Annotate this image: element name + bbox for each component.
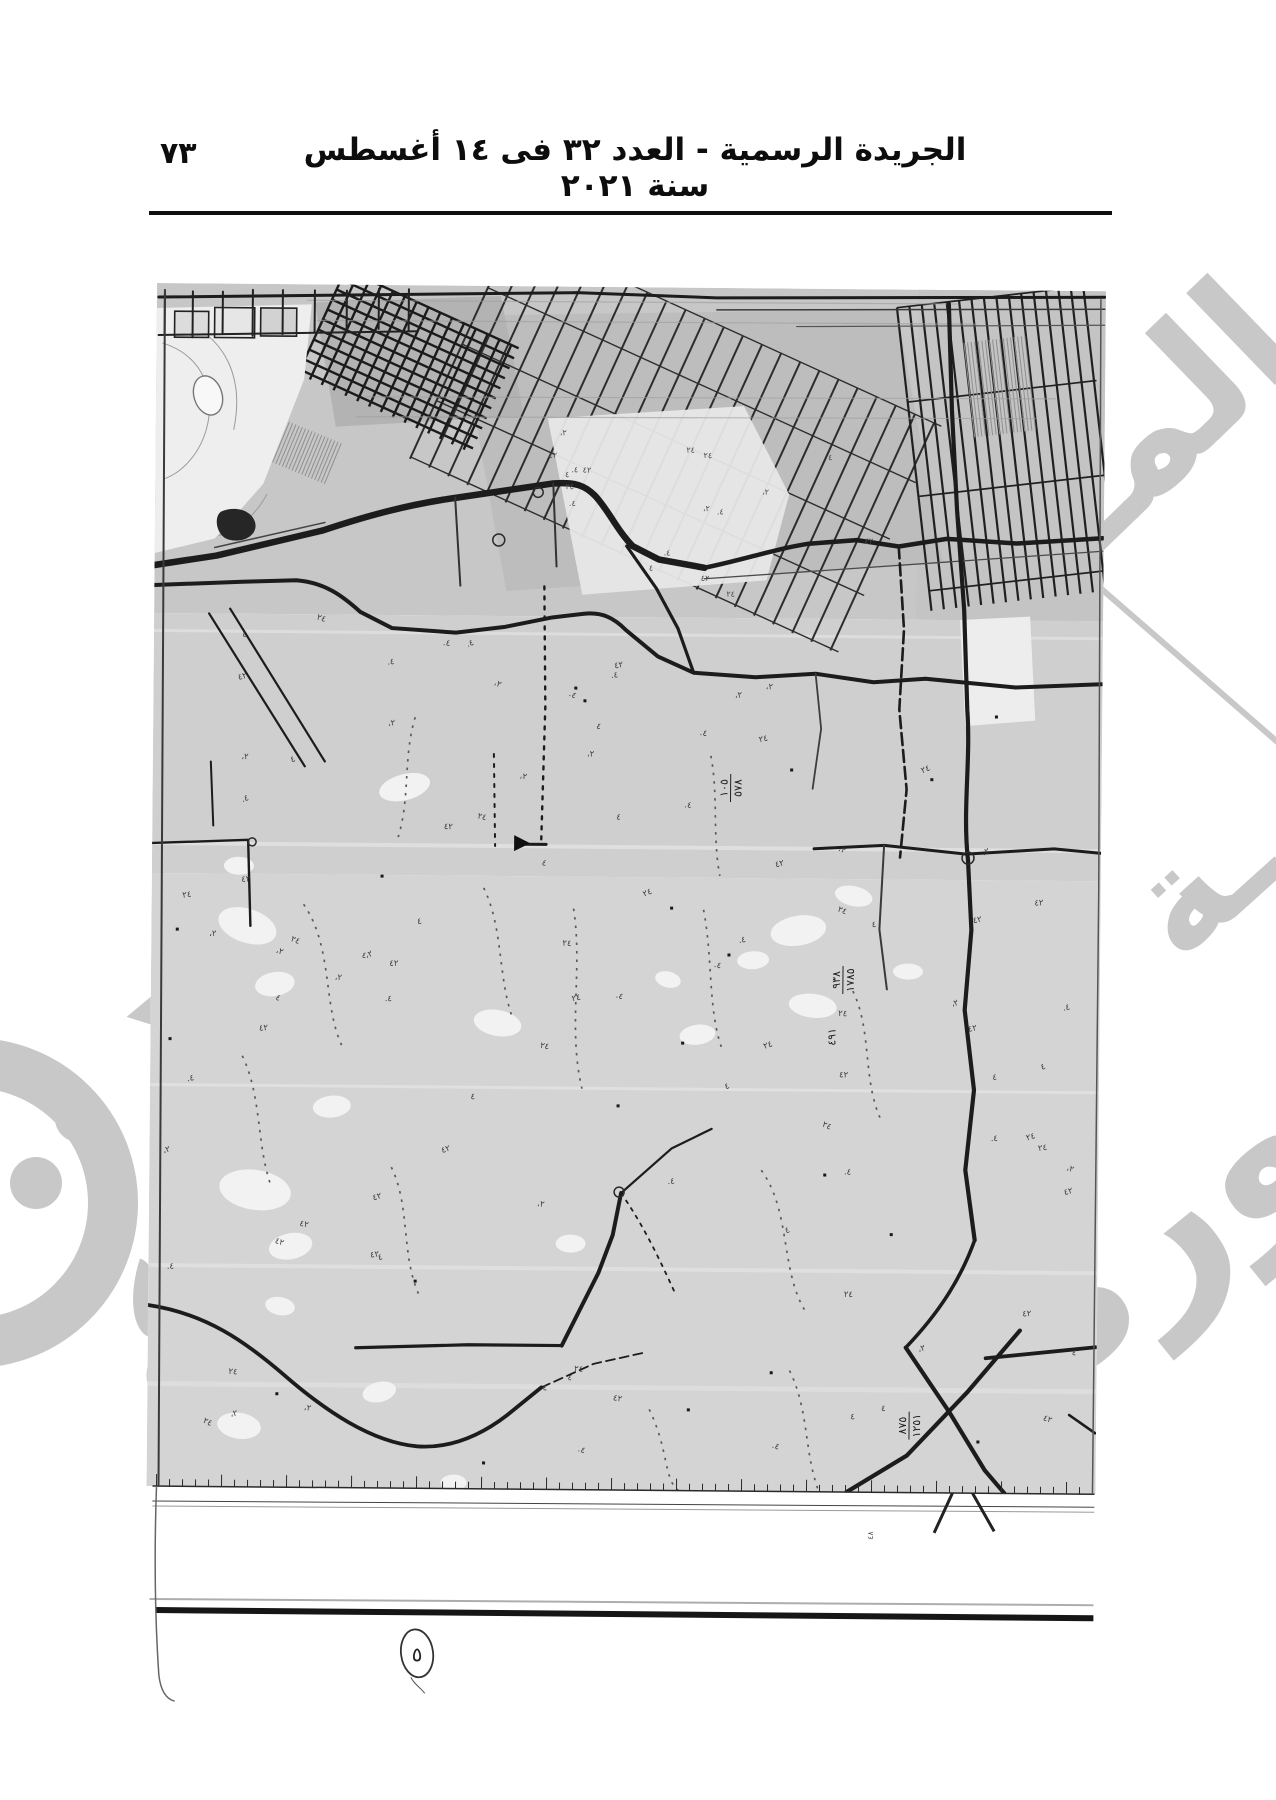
- svg-text:٤٢: ٤٢: [583, 466, 592, 475]
- svg-text:٢٤: ٢٤: [574, 1364, 584, 1375]
- svg-text:٢٤: ٢٤: [704, 451, 713, 460]
- svg-text:٢،: ٢،: [560, 428, 567, 437]
- svg-text:٤: ٤: [565, 470, 569, 479]
- svg-text:١٧٨٥: ١٧٨٥: [844, 968, 857, 992]
- svg-text:٤.: ٤.: [569, 499, 576, 508]
- svg-text:٢٤: ٢٤: [562, 939, 572, 949]
- svg-text:٤: ٤: [542, 1383, 547, 1393]
- svg-text:٤٢: ٤٢: [389, 959, 399, 969]
- svg-text:٤٢: ٤٢: [865, 537, 874, 546]
- page-header: الجريدة الرسمية - العدد ٣٢ فى ١٤ أغسطس س…: [0, 126, 1276, 196]
- svg-text:٤.: ٤.: [387, 657, 395, 668]
- watermark-dot: [55, 1095, 102, 1142]
- svg-text:٤٢: ٤٢: [548, 451, 557, 460]
- svg-text:٢٤: ٢٤: [1037, 1143, 1047, 1154]
- svg-text:٤: ٤: [828, 453, 832, 462]
- svg-text:٤.: ٤.: [667, 1177, 675, 1188]
- svg-text:٤٢: ٤٢: [1034, 898, 1044, 908]
- svg-text:٢٤: ٢٤: [539, 1041, 550, 1053]
- svg-text:٤.: ٤.: [610, 670, 618, 681]
- svg-text:٢،: ٢،: [335, 973, 343, 983]
- svg-text:٤٢: ٤٢: [1022, 1309, 1032, 1320]
- svg-text:٢٤: ٢٤: [844, 1290, 853, 1300]
- cadastral-map-sheet: ٤.٢٤٤٢،٤٢٢٤٤٢،٤٢٤.٤٢،٤٢٤.٢٤٢،٤٢٤.٢٤٤٤٢٤.…: [145, 283, 1106, 1711]
- svg-text:٤: ٤: [992, 1073, 997, 1083]
- svg-text:٤٨: ٤٨: [866, 1531, 875, 1540]
- svg-text:٤٢: ٤٢: [701, 574, 710, 583]
- watermark-dot: [10, 1157, 62, 1209]
- svg-text:٥: ٥: [412, 1642, 423, 1666]
- header-rule: [149, 211, 1112, 215]
- svg-text:٢٤: ٢٤: [228, 1367, 238, 1378]
- gazette-title: الجريدة الرسمية - العدد ٣٢ فى ١٤ أغسطس س…: [290, 132, 980, 204]
- svg-text:٢،: ٢،: [587, 749, 595, 759]
- page-number: ٧٣: [160, 136, 197, 171]
- svg-text:٤: ٤: [470, 1092, 475, 1102]
- svg-text:٤: ٤: [242, 630, 247, 640]
- svg-text:٤.: ٤.: [571, 465, 578, 474]
- svg-text:١٠٥: ١٠٥: [718, 779, 731, 797]
- svg-text:٢٤: ٢٤: [838, 1009, 848, 1019]
- svg-text:٢٤: ٢٤: [182, 890, 192, 901]
- svg-text:٤٢: ٤٢: [444, 822, 454, 832]
- svg-text:٨٧٥: ٨٧٥: [896, 1417, 909, 1435]
- svg-text:٢٤: ٢٤: [571, 993, 582, 1005]
- svg-text:٢،: ٢،: [762, 488, 769, 497]
- svg-text:٤.: ٤.: [990, 1134, 998, 1145]
- svg-text:٤٩١: ٤٩١: [825, 1028, 838, 1046]
- svg-text:٤.: ٤.: [844, 1167, 852, 1177]
- svg-text:٤.: ٤.: [717, 507, 724, 516]
- svg-text:٤: ٤: [850, 1412, 855, 1422]
- svg-text:٤٢: ٤٢: [241, 874, 251, 884]
- watermark-text-fragment: ـة: [1096, 778, 1276, 985]
- svg-text:١٢٥١: ١٢٥١: [910, 1414, 923, 1438]
- svg-text:٢،: ٢،: [703, 504, 710, 513]
- svg-text:٢٤: ٢٤: [686, 446, 695, 455]
- svg-text:٤: ٤: [649, 564, 653, 573]
- svg-text:٤: ٤: [881, 1404, 886, 1414]
- gazette-page: المـ ـة صورة الجريدة الرسمية - العدد ٣٢ …: [0, 0, 1276, 1800]
- svg-text:٤.: ٤.: [684, 800, 692, 811]
- svg-text:٤.: ٤.: [442, 638, 450, 649]
- svg-text:٤.: ٤.: [385, 994, 392, 1004]
- svg-text:٤.: ٤.: [664, 548, 671, 557]
- svg-text:٢،: ٢،: [209, 929, 217, 939]
- svg-text:٤٢: ٤٢: [259, 1023, 269, 1034]
- svg-text:٢٤: ٢٤: [565, 482, 574, 491]
- svg-text:٤.: ٤.: [167, 1262, 175, 1272]
- svg-text:٢،: ٢،: [735, 690, 743, 701]
- svg-text:٥٧٨: ٥٧٨: [732, 779, 745, 797]
- svg-text:٩٣٨: ٩٣٨: [830, 971, 843, 989]
- svg-text:٢،: ٢،: [241, 752, 249, 762]
- cadastral-map-image: ٤.٢٤٤٢،٤٢٢٤٤٢،٤٢٤.٤٢،٤٢٤.٢٤٢،٤٢٤.٢٤٤٤٢٤.…: [145, 283, 1106, 1711]
- watermark-stroke: [1094, 582, 1276, 790]
- svg-text:٢٤: ٢٤: [726, 590, 735, 599]
- svg-text:٢،: ٢،: [766, 682, 774, 692]
- svg-text:٤٢: ٤٢: [839, 1070, 849, 1080]
